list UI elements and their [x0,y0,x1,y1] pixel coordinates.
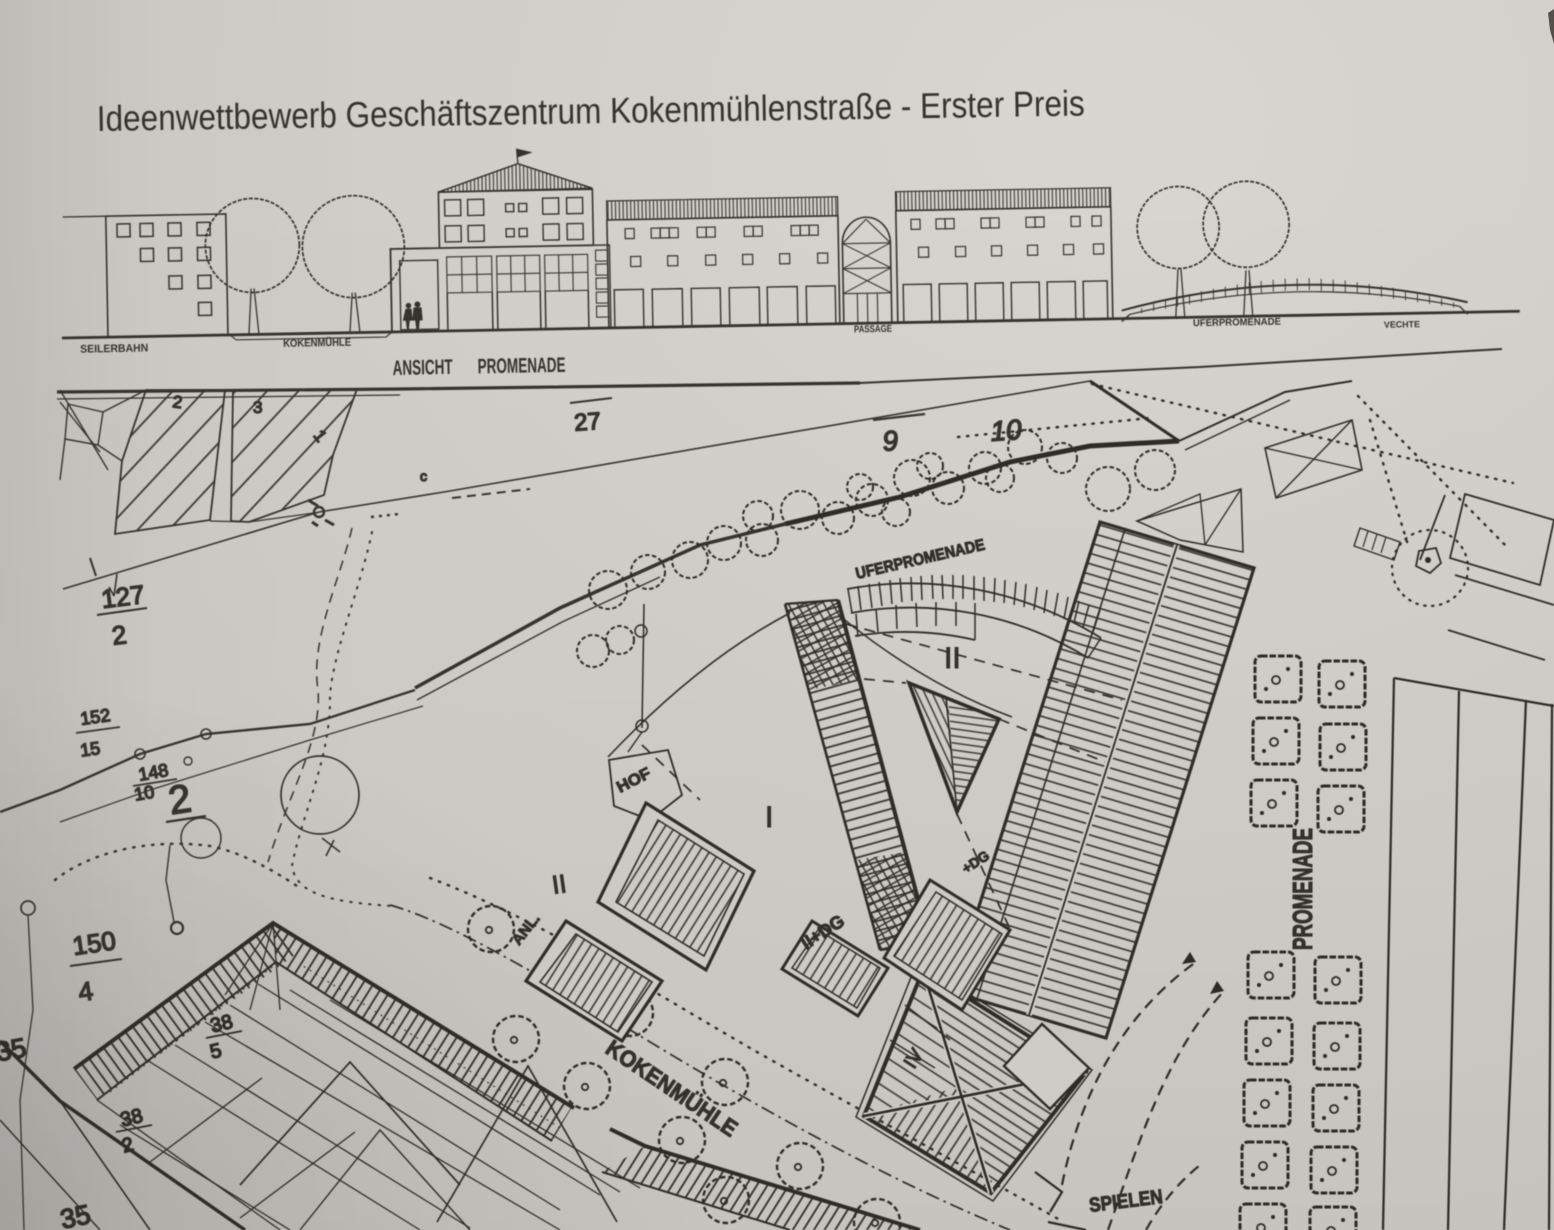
svg-text:I: I [765,801,773,834]
svg-text:15: 15 [79,738,102,761]
svg-text:PROMENADE: PROMENADE [477,354,565,379]
svg-text:152: 152 [79,705,112,729]
svg-text:SEILERBAHN: SEILERBAHN [80,342,148,355]
svg-text:9: 9 [881,425,899,457]
svg-text:3: 3 [253,398,262,417]
svg-text:10: 10 [133,782,156,805]
svg-text:PROMENADE: PROMENADE [1287,828,1318,950]
svg-text:150: 150 [71,925,118,961]
svg-text:c: c [420,468,427,484]
svg-text:KOKENMÜHLE: KOKENMÜHLE [283,336,351,350]
svg-text:27: 27 [573,408,602,437]
svg-text:UFERPROMENADE: UFERPROMENADE [1193,317,1281,330]
svg-text:VECHTE: VECHTE [1384,319,1420,330]
svg-text:35: 35 [58,1199,94,1230]
svg-text:II: II [944,642,961,675]
svg-text:ANSICHT: ANSICHT [392,356,453,380]
svg-text:PASSAGE: PASSAGE [854,324,892,336]
svg-text:10: 10 [989,414,1023,447]
